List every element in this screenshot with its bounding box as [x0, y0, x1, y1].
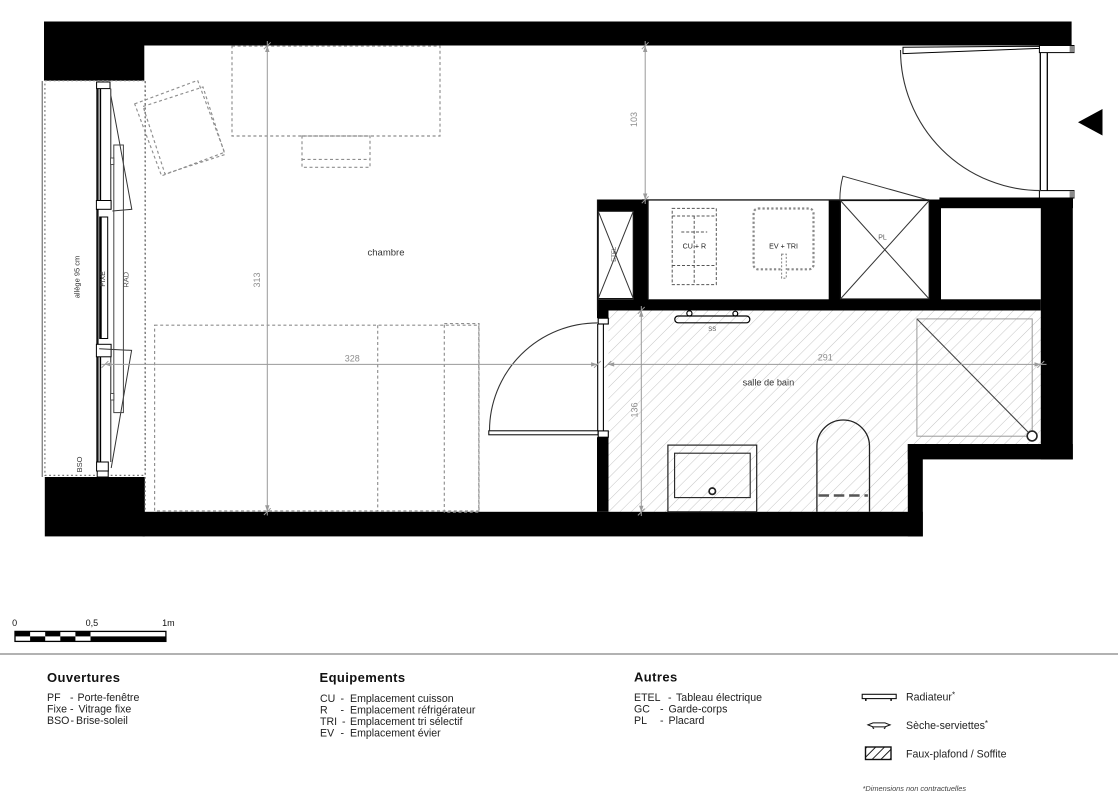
svg-text:Tableau électrique: Tableau électrique — [676, 692, 762, 704]
svg-text:-: - — [70, 704, 74, 716]
svg-text:Brise-soleil: Brise-soleil — [76, 715, 128, 727]
svg-text:Emplacement tri sélectif: Emplacement tri sélectif — [350, 716, 463, 728]
svg-text:GC: GC — [634, 704, 650, 716]
svg-text:-: - — [660, 715, 664, 727]
svg-text:Fixe: Fixe — [47, 704, 67, 716]
svg-text:Emplacement cuisson: Emplacement cuisson — [350, 693, 454, 705]
svg-text:Garde-corps: Garde-corps — [669, 704, 728, 716]
svg-text:Ouvertures: Ouvertures — [47, 670, 120, 685]
svg-text:313: 313 — [252, 272, 262, 287]
svg-text:salle de bain: salle de bain — [743, 378, 795, 388]
svg-text:-: - — [668, 692, 672, 704]
svg-text:allège 95 cm: allège 95 cm — [73, 256, 82, 299]
svg-text:Equipements: Equipements — [320, 670, 406, 685]
svg-text:PL: PL — [634, 715, 647, 727]
svg-text:291: 291 — [818, 352, 833, 362]
svg-text:-: - — [70, 692, 74, 704]
svg-text:R: R — [320, 705, 328, 717]
svg-text:0: 0 — [12, 618, 17, 628]
svg-text:Placard: Placard — [669, 715, 705, 727]
svg-text:ETEL: ETEL — [634, 692, 661, 704]
svg-text:*Dimensions non contractuelles: *Dimensions non contractuelles — [863, 784, 967, 793]
svg-text:Sèche-serviettes*: Sèche-serviettes* — [906, 719, 988, 732]
svg-text:Autres: Autres — [634, 670, 678, 685]
svg-text:Radiateur*: Radiateur* — [906, 691, 955, 704]
svg-text:SS: SS — [708, 327, 716, 333]
svg-text:Vitrage fixe: Vitrage fixe — [79, 704, 132, 716]
svg-text:EV + TRI: EV + TRI — [769, 242, 798, 250]
svg-text:-: - — [341, 727, 345, 739]
svg-text:Porte-fenêtre: Porte-fenêtre — [78, 692, 140, 704]
svg-text:BSO: BSO — [47, 715, 69, 727]
svg-text:0,5: 0,5 — [86, 618, 99, 628]
svg-text:TRI: TRI — [320, 716, 337, 728]
svg-text:PL: PL — [878, 234, 887, 241]
svg-text:-: - — [660, 704, 664, 716]
svg-text:Emplacement réfrigérateur: Emplacement réfrigérateur — [350, 705, 476, 717]
svg-text:-: - — [342, 716, 346, 728]
svg-text:BSO: BSO — [75, 456, 84, 472]
svg-text:FIXE: FIXE — [100, 271, 107, 287]
svg-text:CU + R: CU + R — [683, 242, 706, 250]
svg-text:chambre: chambre — [368, 248, 405, 259]
svg-text:136: 136 — [629, 402, 639, 417]
svg-text:1m: 1m — [162, 618, 175, 628]
svg-text:-: - — [341, 705, 345, 717]
svg-text:-: - — [341, 693, 345, 705]
svg-text:RAD: RAD — [122, 271, 131, 287]
svg-text:Faux-plafond / Soffite: Faux-plafond / Soffite — [906, 748, 1007, 760]
svg-text:CU: CU — [320, 693, 335, 705]
svg-text:-: - — [71, 715, 75, 727]
svg-text:Emplacement évier: Emplacement évier — [350, 727, 441, 739]
svg-text:328: 328 — [345, 353, 360, 363]
svg-text:EV: EV — [320, 727, 335, 739]
svg-text:PF: PF — [47, 692, 61, 704]
svg-text:ETEL: ETEL — [612, 246, 618, 262]
svg-text:103: 103 — [629, 112, 639, 127]
